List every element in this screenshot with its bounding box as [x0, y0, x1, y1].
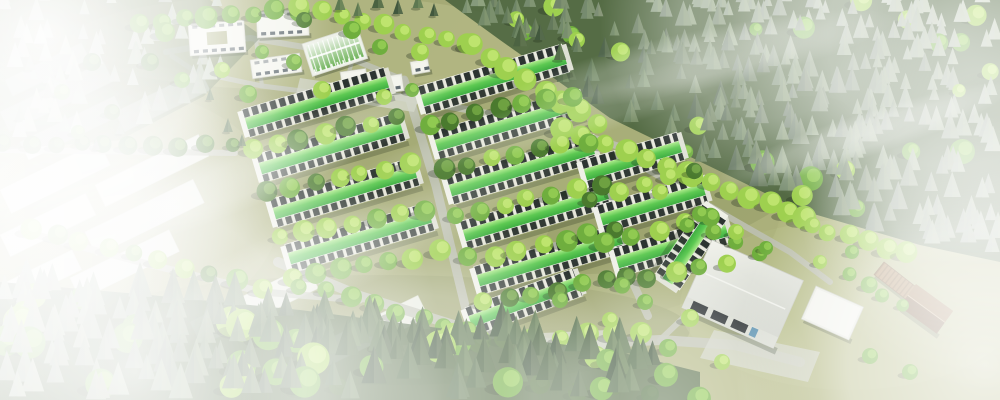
fog-wash: [0, 0, 260, 400]
aerial-site-rendering: [0, 0, 1000, 400]
aerial-render-figure: [0, 0, 1000, 400]
